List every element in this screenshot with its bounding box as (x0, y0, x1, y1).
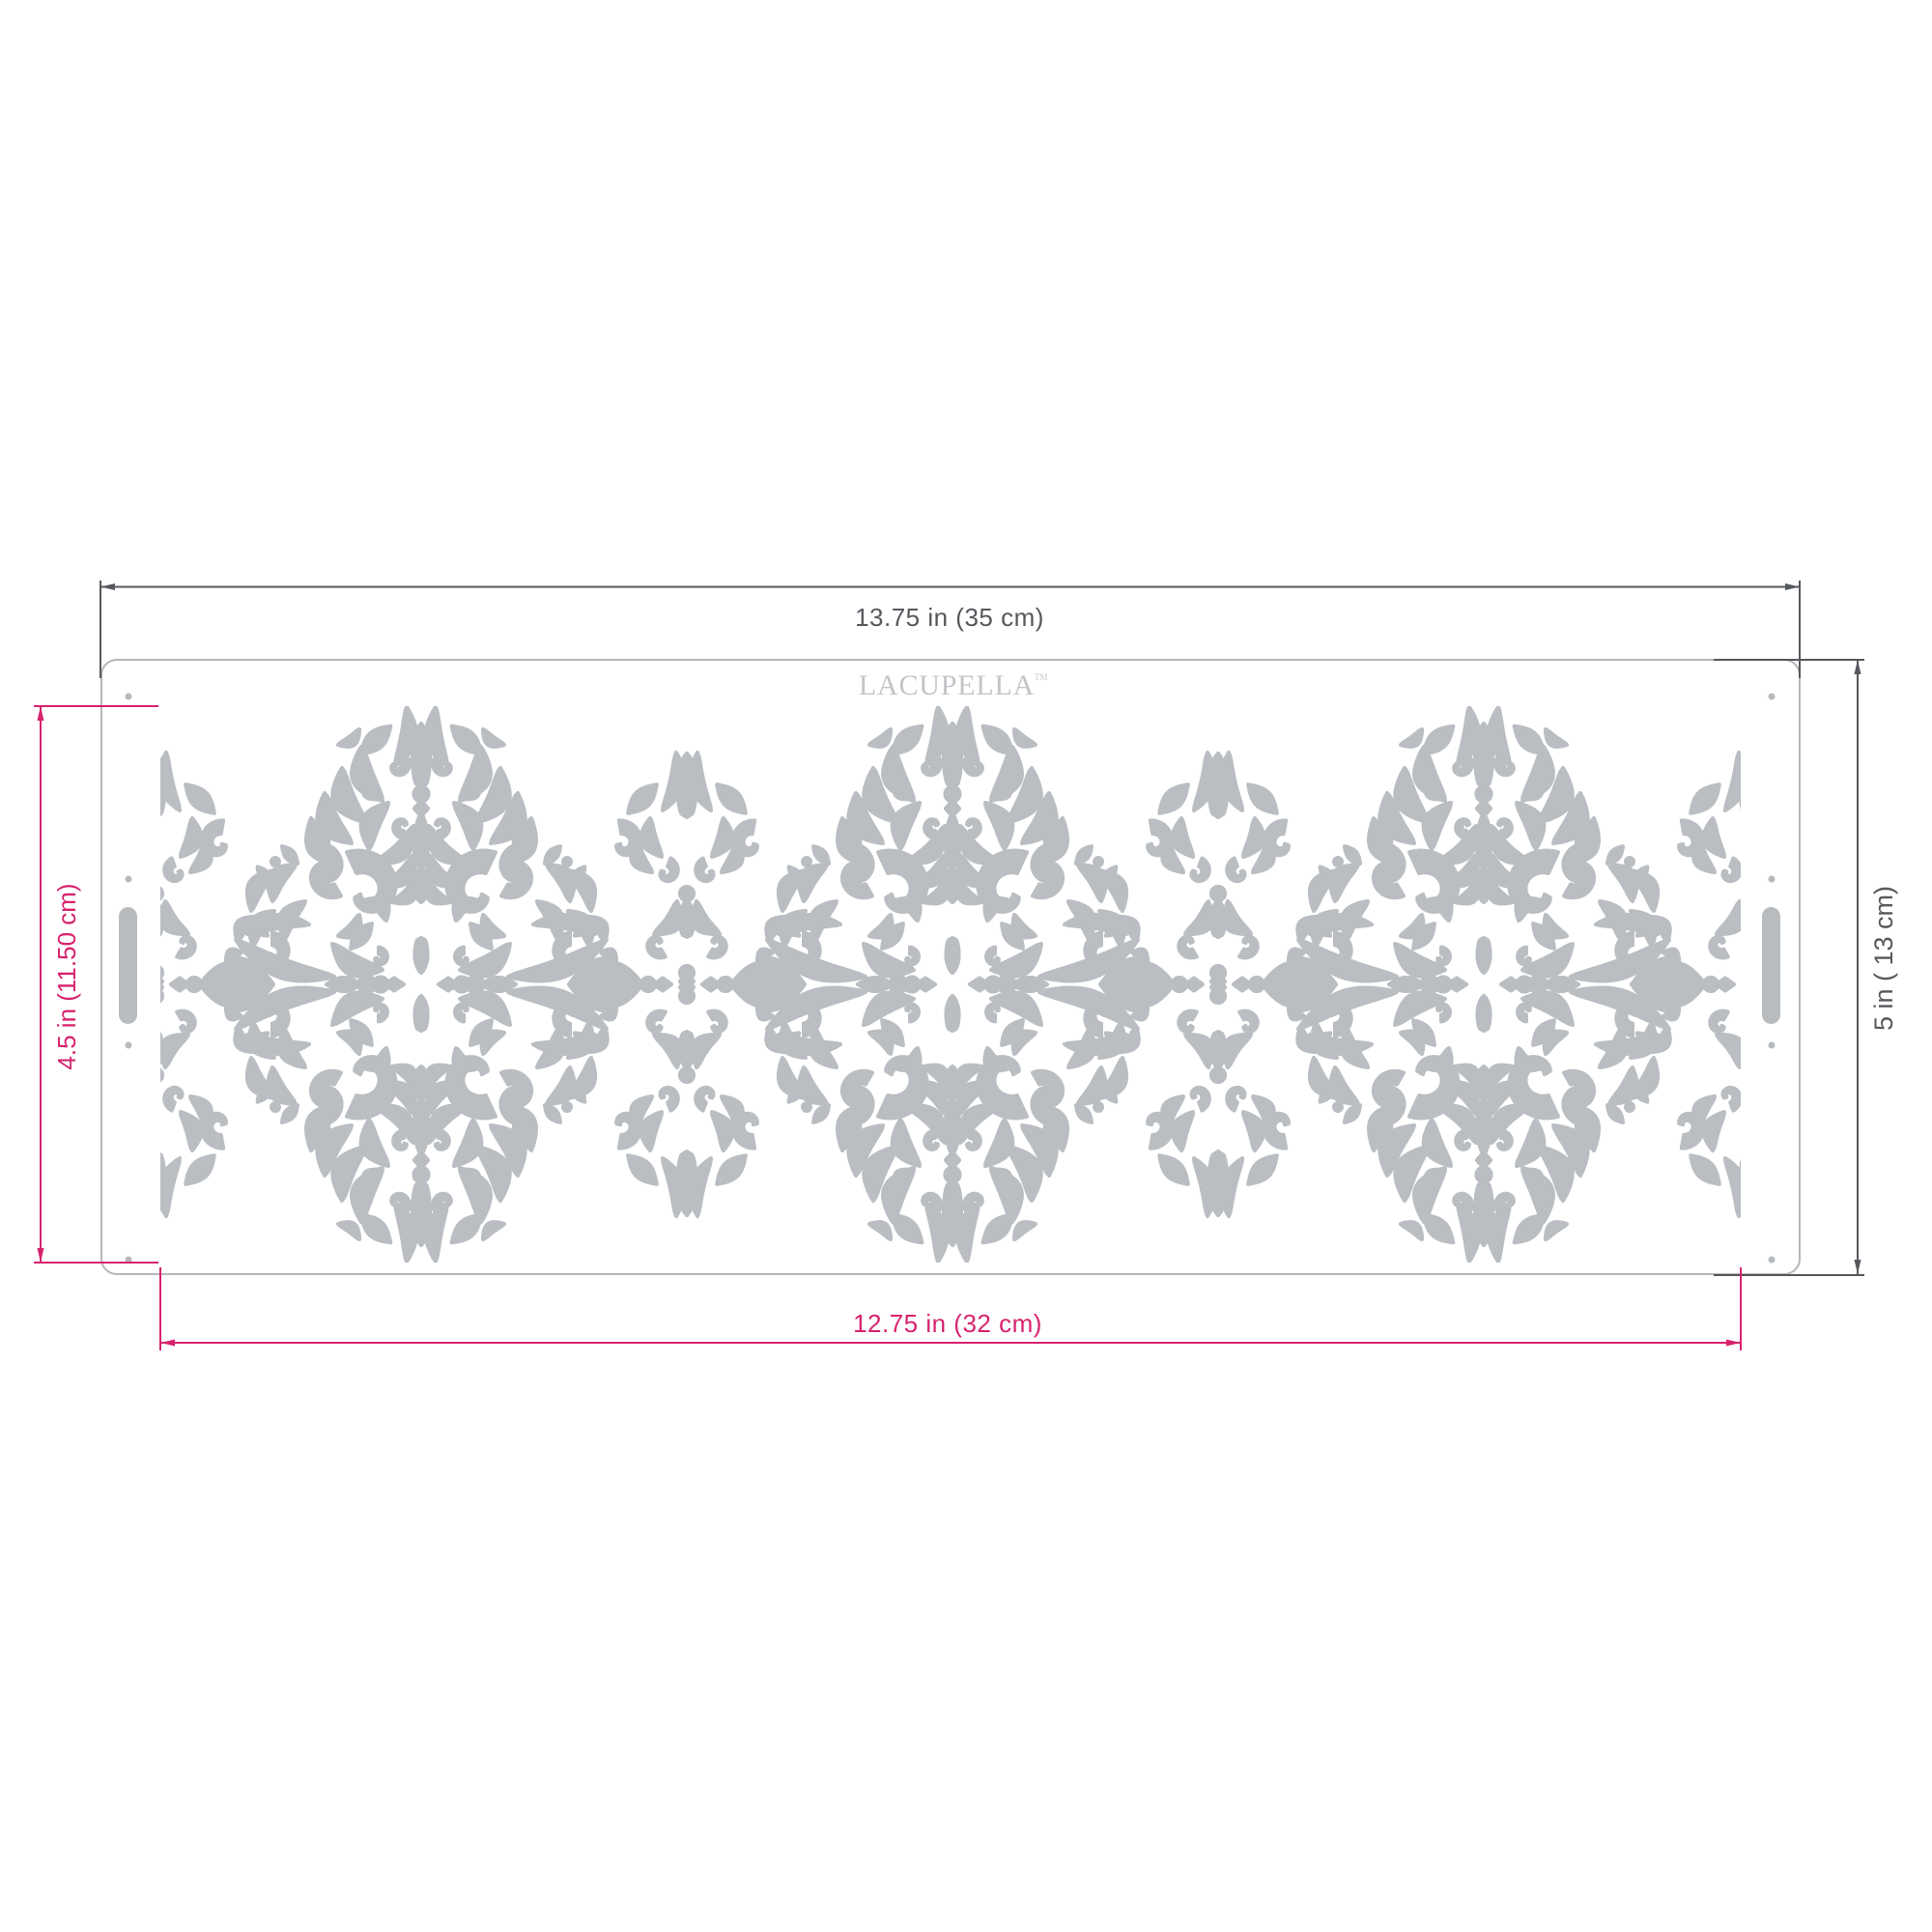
svg-text:LACUPELLA: LACUPELLA (859, 669, 1035, 701)
svg-text:5 in ( 13 cm): 5 in ( 13 cm) (1869, 886, 1898, 1031)
svg-text:TM: TM (1035, 672, 1048, 682)
svg-text:4.5 in (11.50 cm): 4.5 in (11.50 cm) (52, 883, 81, 1069)
svg-text:12.75 in (32 cm): 12.75 in (32 cm) (853, 1309, 1042, 1338)
svg-text:13.75 in (35 cm): 13.75 in (35 cm) (855, 603, 1044, 632)
